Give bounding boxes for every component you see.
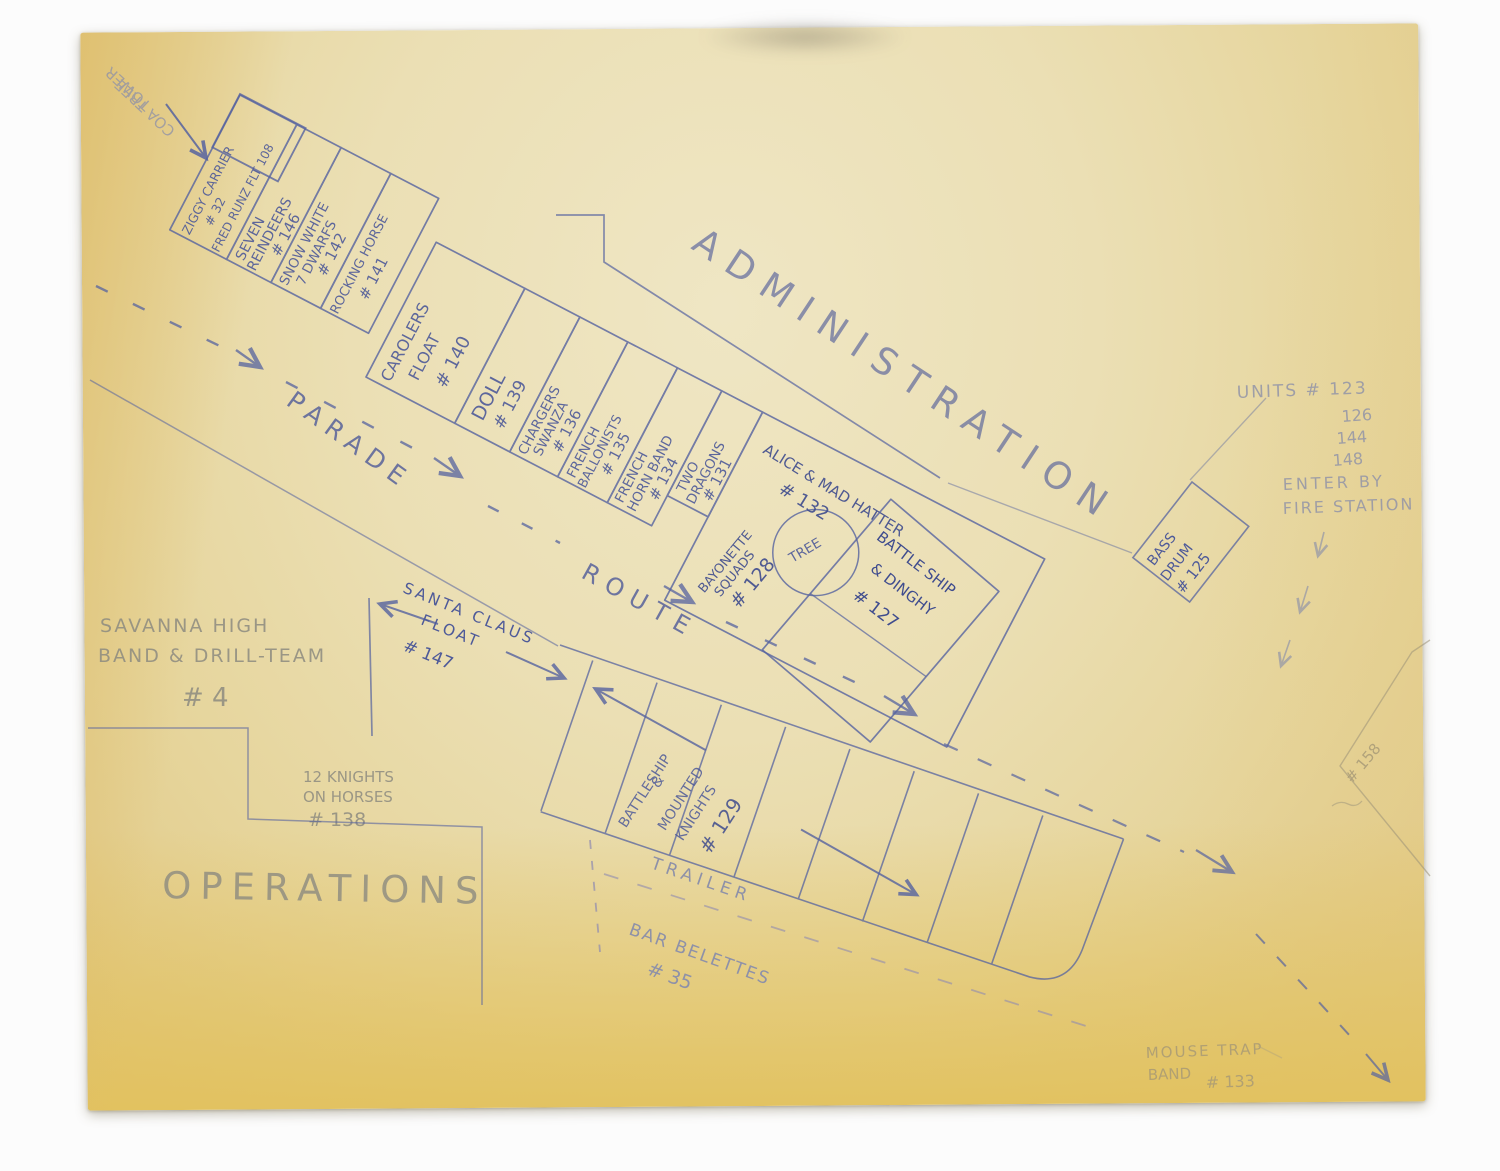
stall-right-arrow	[793, 830, 924, 895]
edge-note-scribble	[1332, 801, 1362, 806]
units-line5: ENTER BY	[1282, 471, 1385, 494]
units-line3: 144	[1336, 427, 1368, 448]
route-label: ROUTE	[577, 558, 702, 645]
units-line6: FIRE STATION	[1282, 494, 1414, 518]
corner-note-line2: TOWER	[102, 63, 156, 115]
administration-label: ADMINISTRATION	[685, 220, 1126, 532]
units-note: UNITS # 123 126 144 148 ENTER BY FIRE ST…	[1236, 378, 1414, 666]
savanna-line1: SAVANNA HIGH	[100, 615, 269, 637]
operations-label: OPERATIONS	[162, 864, 488, 913]
lower-stall-row: BATTLESHIP & MOUNTED KNIGHTS # 129	[507, 645, 1124, 994]
santa-claus-note: SANTA CLAUS FLOAT # 147	[369, 579, 564, 736]
exit-arrow-2	[1366, 1054, 1388, 1080]
knights-line1: 12 KNIGHTS	[303, 768, 394, 786]
trailer-label: TRAILER	[647, 853, 754, 906]
savanna-line2: BAND & DRILL-TEAM	[98, 645, 326, 667]
knights-line2: ON HORSES	[303, 788, 393, 806]
parade-map-drawing: COA TREE TOWER ZIGGY CARRIER # 32 F	[0, 0, 1500, 1171]
knights-line3: # 138	[308, 809, 366, 831]
santa-right-arrow	[506, 652, 564, 678]
stall-row-top-edge	[560, 645, 1124, 839]
santa-label-3: # 147	[400, 636, 456, 674]
mousetrap-note: MOUSE TRAP BAND # 133	[1146, 1040, 1282, 1092]
parade-label: PARADE	[281, 385, 417, 495]
route-arrow-2	[434, 458, 460, 476]
units-line4: 148	[1332, 449, 1364, 470]
santa-staging-line	[369, 598, 372, 736]
right-edge-notch: # 158	[1332, 640, 1430, 876]
mousetrap-line2: BAND	[1148, 1064, 1192, 1084]
units-line1: UNITS # 123	[1236, 378, 1367, 403]
corner-tower-note: COA TREE TOWER	[102, 63, 179, 140]
route-arrow-1	[236, 350, 260, 367]
tree-label: TREE	[785, 535, 824, 567]
mousetrap-line1: MOUSE TRAP	[1146, 1040, 1264, 1062]
edge-note-number: # 158	[1341, 740, 1384, 787]
trailer-area: TRAILER BAR BELETTES # 35	[590, 840, 1086, 1026]
savanna-line3: # 4	[182, 683, 229, 713]
exit-arrow-1	[1196, 850, 1232, 872]
route-arrow-4	[884, 696, 914, 714]
bass-drum-box: BASS DRUM # 125	[1133, 482, 1249, 602]
fire-station-path-arrows	[1281, 532, 1324, 666]
mousetrap-line3: # 133	[1205, 1071, 1255, 1092]
upper-float-row: ZIGGY CARRIER # 32 FRED RUNZ FLT 108 SEV…	[109, 95, 1063, 774]
scanned-parade-map-page: { "palette": { "ink": "#4e5a99", "ink_da…	[0, 0, 1500, 1171]
trailer-dashed-left-edge	[590, 840, 600, 952]
battleship-dinghy-box: BATTLE SHIP & DINGHY # 127	[762, 499, 999, 742]
corner-marker-box	[166, 94, 306, 181]
exit-route-dashes	[944, 744, 1388, 1080]
stall-left-arrow	[588, 689, 712, 750]
barbelettes-number: # 35	[644, 958, 695, 994]
battleship-knights-label: BATTLESHIP & MOUNTED KNIGHTS # 129	[615, 745, 755, 864]
savanna-band-note: SAVANNA HIGH BAND & DRILL-TEAM # 4	[98, 615, 326, 713]
units-line2: 126	[1341, 405, 1373, 426]
